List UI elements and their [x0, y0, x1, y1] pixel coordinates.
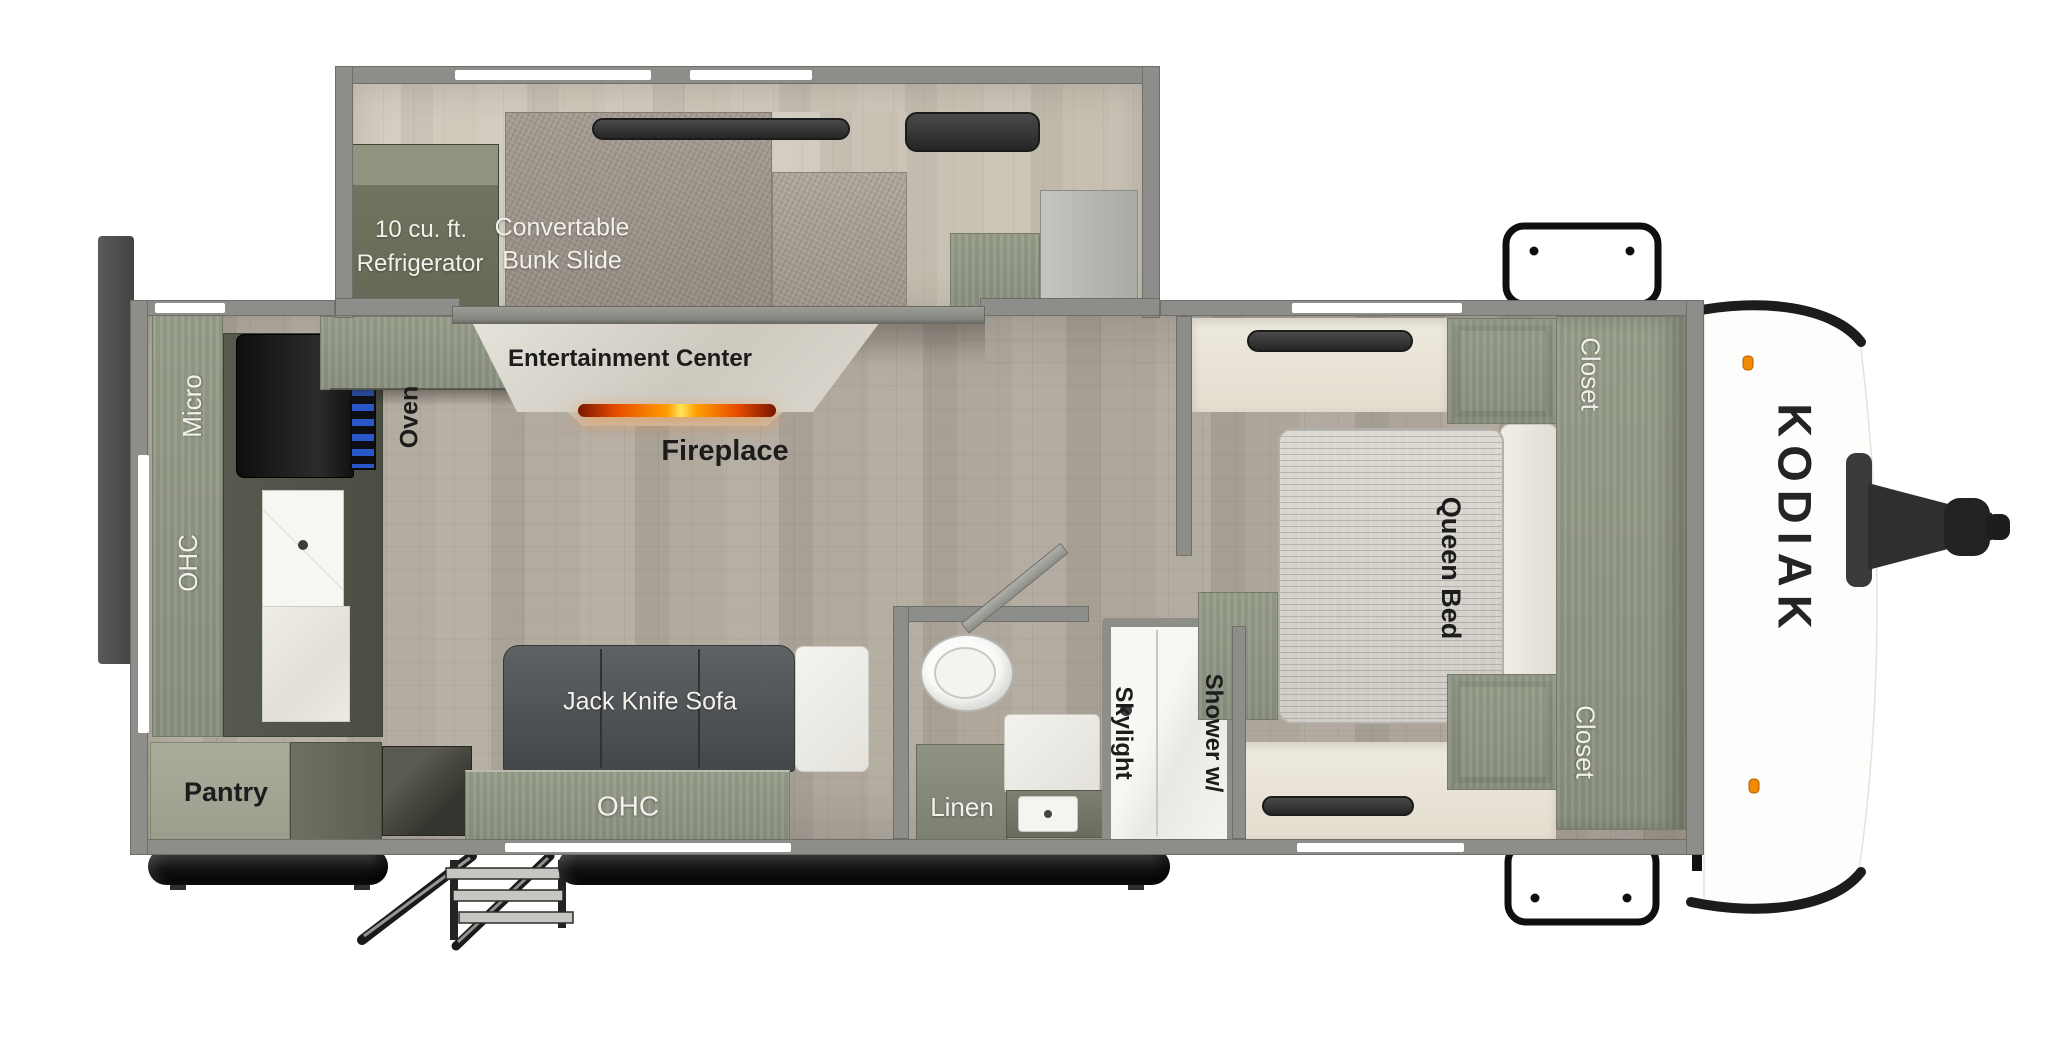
label-bunk-line2: Bunk Slide: [502, 245, 622, 276]
window-bedroom-top: [1292, 303, 1462, 313]
slideout-roof-hatch: [905, 112, 1040, 152]
wall-front-joint: [1686, 300, 1704, 855]
bed-pillow-strip: [1500, 424, 1558, 706]
floorplan-canvas: KODIAK: [0, 0, 2048, 1050]
window-rear-top: [155, 303, 225, 313]
window-slideout-1: [455, 70, 651, 80]
label-shower-line1: Shower w/: [1198, 674, 1228, 793]
slideout-side-cabinet: [1040, 190, 1138, 310]
jack-foot: [1623, 894, 1632, 903]
stabilizer-jack-front-bottom: [1508, 844, 1656, 922]
window-bedroom-bottom: [1297, 843, 1464, 852]
label-fireplace: Fireplace: [661, 433, 788, 469]
vanity-faucet: [1044, 810, 1052, 818]
jack-foot: [1530, 247, 1539, 256]
bath-wall-left: [893, 606, 909, 839]
bedroom-roof-vent: [1247, 330, 1413, 352]
label-pantry: Pantry: [184, 776, 268, 810]
label-shower: Shower w/ Skylight: [1048, 674, 1288, 793]
rear-cap-bar: [98, 236, 134, 664]
step-tread: [459, 912, 573, 923]
bed-foot-rail: [1262, 796, 1414, 816]
kitchen-counter-marble: [262, 606, 350, 722]
label-linen: Linen: [930, 791, 994, 824]
bunk-mattress-left: [505, 112, 772, 310]
toilet-lid: [934, 647, 996, 699]
jack-foot: [1626, 247, 1635, 256]
label-jack-knife-sofa: Jack Knife Sofa: [563, 686, 737, 717]
slideout-wall-right: [1142, 66, 1160, 318]
stabilizer-jack-front-top: [1506, 226, 1658, 304]
bunk-mattress-right: [772, 172, 907, 310]
slideout-roof-vent: [592, 118, 850, 140]
pantry-cabinet-side: [290, 742, 382, 842]
jack-foot: [1531, 894, 1540, 903]
window-rear-side: [138, 455, 149, 733]
window-door-side: [505, 843, 791, 852]
label-closet-bottom: Closet: [1569, 705, 1602, 779]
label-kitchen-ohc: OHC: [172, 534, 205, 592]
label-queen-bed: Queen Bed: [1433, 497, 1467, 640]
bed-side-cabinet-top: [1447, 318, 1559, 424]
label-refrigerator-line2: Refrigerator: [357, 249, 484, 279]
label-oven: Oven: [394, 386, 425, 449]
slideout-rail: [452, 306, 985, 324]
step-tread: [446, 868, 560, 879]
label-micro: Micro: [176, 374, 209, 438]
bedroom-divider-wall: [1176, 316, 1192, 556]
label-closet-top: Closet: [1574, 337, 1607, 411]
bed-side-cabinet-bottom: [1447, 674, 1559, 790]
wall-bottom: [130, 839, 1704, 855]
label-bunk-line1: Convertable: [495, 212, 630, 243]
sink-faucet: [298, 540, 308, 550]
label-entertainment-center: Entertainment Center: [508, 344, 752, 374]
label-refrigerator-line1: 10 cu. ft.: [375, 215, 467, 245]
cap-joint-tick: [1692, 855, 1702, 871]
step-tread: [453, 890, 563, 901]
slideout-wall-stub-left: [335, 298, 460, 316]
label-shower-line2: Skylight: [1108, 674, 1138, 793]
slideout-wall-stub-right: [980, 298, 1160, 316]
slideout-wall-left: [335, 66, 353, 318]
fireplace-glow: [578, 404, 776, 417]
window-slideout-2: [690, 70, 812, 80]
label-sofa-ohc: OHC: [597, 789, 659, 824]
sofa-bedding: [795, 646, 869, 772]
entry-step-well: [382, 746, 472, 836]
